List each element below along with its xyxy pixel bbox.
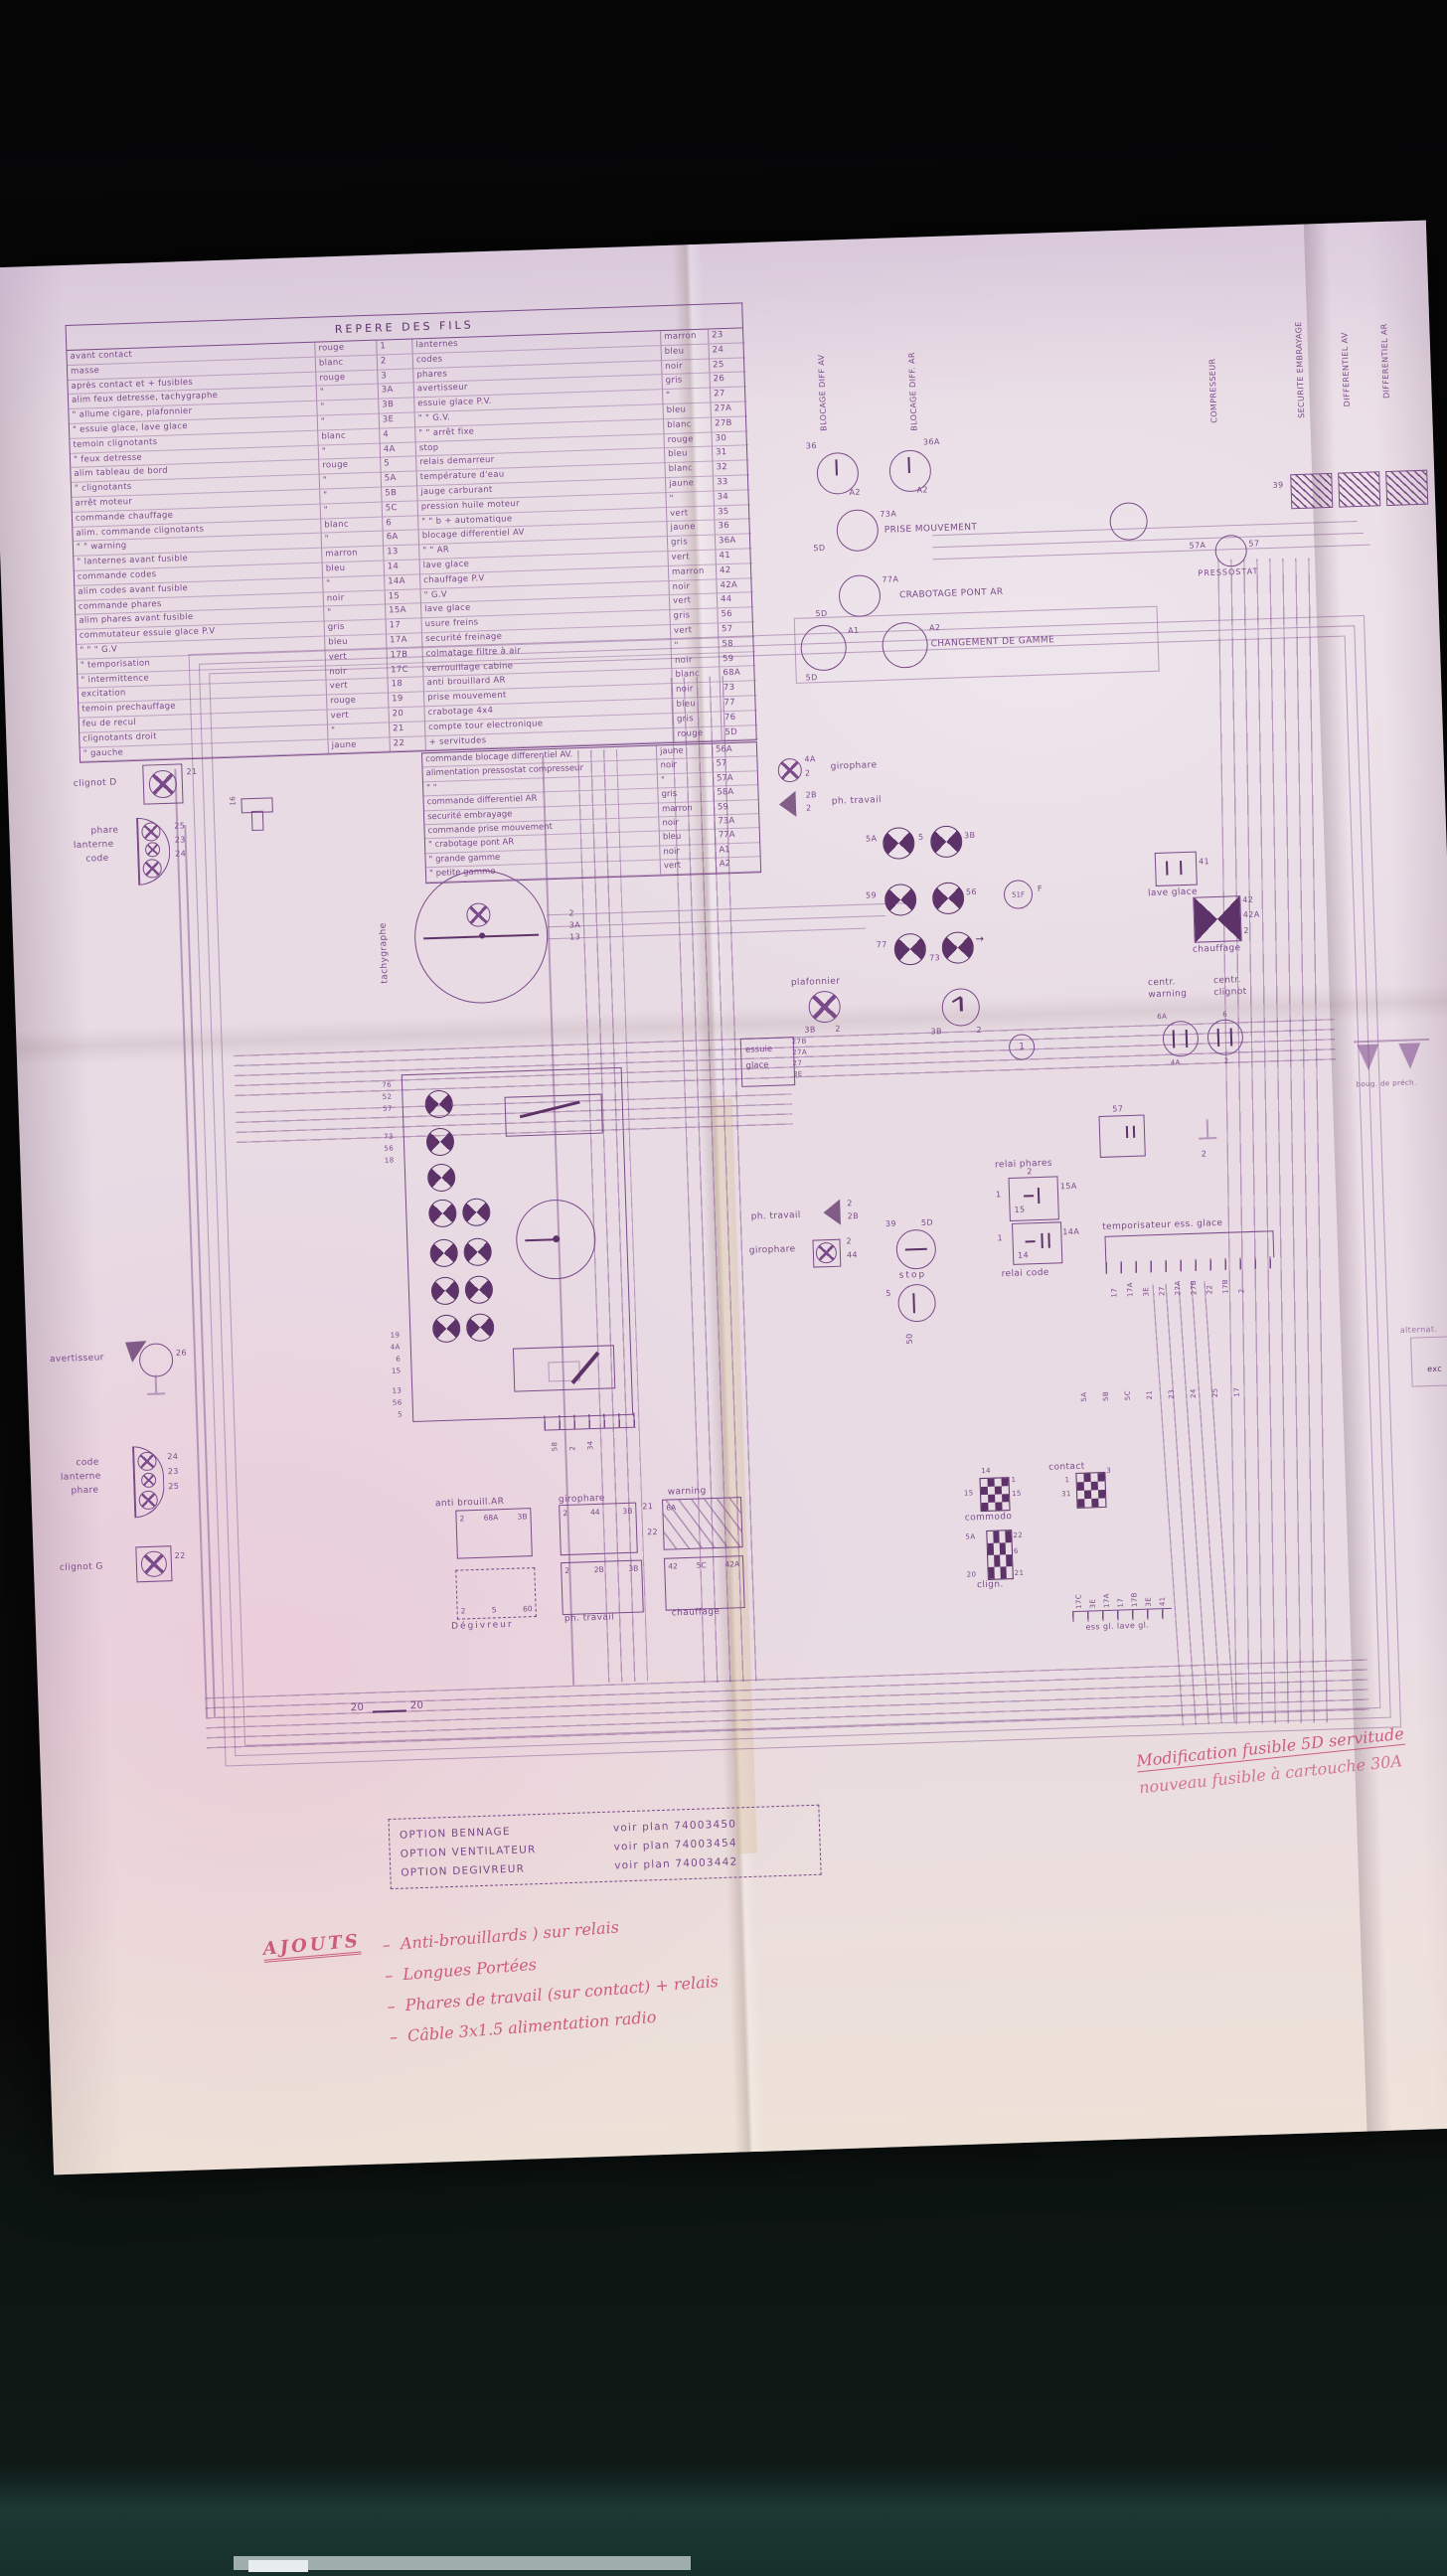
num-left: 17C (388, 663, 423, 679)
color-right: jaune (666, 476, 714, 492)
pin: 44 (590, 1508, 601, 1553)
compresseur-symbol (1109, 502, 1148, 541)
pin: 17A (1102, 1586, 1111, 1608)
pin: 58 (551, 1433, 560, 1451)
num-right: 32 (713, 460, 748, 476)
wire-table: REPERE DES FILS avant contact rouge 1 la… (66, 302, 757, 763)
label-lave-glace: lave glace (1148, 887, 1198, 899)
label-clign: clign. (977, 1579, 1004, 1590)
pin: 14A (1062, 1227, 1079, 1237)
color-right: vert (671, 623, 719, 639)
label-commodo: commodo (965, 1512, 1013, 1524)
pin: 39 (885, 1219, 896, 1229)
num-right: 73 (721, 681, 756, 697)
num-right: 34 (714, 490, 749, 506)
pin: 31 (1061, 1490, 1071, 1498)
pin: 2 (1202, 1149, 1207, 1158)
label-degivreur: Dégivreur (451, 1620, 514, 1632)
pin: 59 (866, 890, 877, 900)
pin: 25 (1210, 1375, 1219, 1397)
num-right: 25 (710, 358, 745, 374)
pin: A2 (849, 488, 861, 498)
label-glace: glace (745, 1056, 794, 1074)
cluster-pins-g1: 765257 (370, 1079, 393, 1116)
blueprint-sheet: REPERE DES FILS avant contact rouge 1 la… (0, 221, 1447, 2175)
num-left: 14A (385, 574, 420, 590)
pin: F (1038, 885, 1043, 893)
num-left: 5 (381, 457, 416, 473)
num: 57A (714, 771, 757, 787)
pin: 5C (697, 1560, 709, 1608)
pin: 21 (186, 767, 197, 777)
pin: 5A (965, 1532, 975, 1540)
label-plafonnier: plafonnier (791, 977, 841, 989)
arrow-icon: → (975, 934, 984, 946)
label-securite-embrayage: SECURITE EMBRAYAGE (1294, 319, 1306, 418)
pin: 56 (380, 1396, 402, 1409)
pin: 13 (380, 1384, 402, 1397)
table-surface (0, 2465, 1447, 2576)
pin: 5D (921, 1218, 933, 1228)
pin: 2 (1224, 1057, 1229, 1065)
num-right: 58 (719, 637, 754, 653)
option-name: OPTION DEGIVREUR (401, 1859, 614, 1878)
pin: 56 (966, 887, 977, 897)
pin: 22 (174, 1551, 185, 1561)
num: 59 (715, 800, 758, 816)
relai-phares-box (1008, 1176, 1058, 1221)
cluster-pins-g2: 735618 (372, 1131, 395, 1168)
num-left: 5B (382, 486, 417, 502)
pin: 60 (523, 1604, 533, 1613)
ph-travail-symbol-lower (823, 1200, 841, 1226)
pin: 5 (381, 1408, 402, 1421)
num-left: 20 (389, 707, 424, 723)
label-essuie: essuie (745, 1041, 794, 1058)
pin: 24 (175, 849, 186, 859)
pin: 27A (1174, 1273, 1183, 1295)
pin: 25 (168, 1482, 179, 1492)
color-right: " (663, 389, 711, 404)
switch-warning: 6A (662, 1497, 743, 1550)
pin: 42A (724, 1559, 740, 1607)
instrument-cluster (402, 1067, 633, 1422)
color-right: bleu (665, 447, 713, 463)
pin: 73 (929, 953, 940, 963)
num-right: 41 (716, 549, 751, 564)
note-ajouts-heading: AJOUTS (262, 1931, 362, 1963)
pin: 52 (370, 1091, 392, 1104)
pin: 27 (1158, 1274, 1167, 1296)
num-left: 3E (380, 412, 415, 428)
pin: 57 (1112, 1104, 1123, 1114)
num-left: 14 (385, 560, 420, 575)
num: 58A (714, 785, 757, 801)
pin: 18 (372, 1155, 394, 1168)
pin: 17C (1074, 1587, 1083, 1609)
pin: 2 (563, 1509, 568, 1554)
pin: 73 (372, 1131, 394, 1144)
pin: 2 (459, 1514, 465, 1557)
crabotage-connector (838, 574, 881, 617)
label-code: code (85, 854, 109, 865)
horn-symbol (139, 1343, 174, 1377)
pin: 68A (483, 1513, 499, 1556)
pin: 2 (806, 803, 812, 812)
headlamp-cluster-2 (132, 1445, 165, 1518)
pin: A2 (929, 623, 941, 633)
num: A1 (716, 843, 759, 859)
lave-glace-symbol (1155, 852, 1198, 886)
pin: 36 (806, 441, 817, 451)
num-right: 56 (718, 607, 753, 623)
num-right: 27A (711, 402, 746, 417)
options-box: OPTION BENNAGE voir plan 74003450 OPTION… (389, 1805, 822, 1889)
pin: 2 (1243, 926, 1249, 935)
switch-ph-travail: 22B3B (561, 1559, 644, 1615)
pin: 3E (793, 1070, 803, 1078)
label-alternateur: alternat. (1400, 1325, 1438, 1335)
num-right: 57 (719, 622, 754, 638)
color-right: vert (667, 506, 715, 522)
note-ajouts-items: – Anti-brouillards ) sur relais– Longues… (382, 1904, 723, 2052)
pin: 21 (1015, 1569, 1025, 1577)
num: 56A (713, 742, 756, 758)
num-left: 6A (384, 531, 419, 547)
pin: 3A (569, 920, 581, 930)
switch-degivreur: 2560 (455, 1567, 537, 1620)
pin: 2 (1237, 1271, 1246, 1293)
pin: 41 (1158, 1584, 1167, 1606)
num-right: 26 (710, 373, 745, 389)
color-right: vert (670, 594, 718, 610)
pin: 42A (1243, 909, 1260, 919)
pin: 76 (370, 1079, 392, 1092)
num-right: 68A (720, 667, 755, 683)
headlamp-cluster (136, 817, 171, 885)
pin: 25 (174, 821, 185, 831)
pin: 5A (866, 834, 878, 844)
pin: 2 (835, 1025, 841, 1034)
label-clignot-d: clignot D (74, 778, 117, 790)
label-phare2: phare (71, 1486, 98, 1497)
wire-table-extra: commande blocage differentiel AV. jaune … (421, 741, 761, 884)
horn-ground (147, 1392, 165, 1395)
clignot-g-lamp-box (135, 1545, 172, 1582)
pin: 5 (918, 833, 924, 842)
pin: 34 (586, 1432, 595, 1450)
pin: 23 (175, 835, 186, 845)
num-right: 35 (715, 505, 750, 521)
num-right: 77 (721, 696, 756, 712)
pin: 19 (378, 1329, 400, 1342)
color: vert (661, 859, 717, 875)
label-ph-travail-switch: ph. travail (564, 1612, 614, 1624)
pin: 77A (882, 574, 898, 584)
label-ph-travail-upper: ph. travail (832, 795, 882, 807)
num-right: 5D (722, 725, 757, 741)
pin: 22 (1206, 1272, 1214, 1294)
color-right: marron (669, 564, 717, 580)
pin: 27B (1190, 1273, 1199, 1295)
pin: 41 (1199, 857, 1209, 867)
pin: 2 (460, 1606, 465, 1615)
color-right: gris (668, 536, 716, 552)
switch-girophare: 2443B (559, 1503, 638, 1556)
num-right: 23 (709, 328, 744, 344)
girophare-box-lower (812, 1239, 841, 1268)
label-girophare-upper: girophare (831, 760, 878, 772)
pin: 2B (594, 1565, 606, 1613)
wire-21: 21 (642, 1502, 653, 1512)
num-right: 42 (717, 563, 752, 579)
switch-chauffage: 425C42A (664, 1555, 745, 1611)
pin: 57 (1248, 539, 1259, 549)
pin: 73A (880, 509, 896, 519)
pin: 2 (568, 1433, 577, 1451)
pin: A1 (848, 626, 860, 636)
pin: 3 (1106, 1467, 1111, 1475)
pin: 23 (1167, 1377, 1176, 1399)
wire-table-body: avant contact rouge 1 lanternes marron 2… (66, 327, 756, 763)
pin: 2 (847, 1199, 853, 1207)
chauffage-fan-symbol (1193, 895, 1241, 943)
color-right: noir (669, 579, 717, 595)
commodo-connector (979, 1477, 1010, 1512)
pin: 5D (813, 544, 825, 554)
num-left: 3B (379, 399, 414, 414)
pin: 3E (1088, 1586, 1097, 1608)
label-differentiel-ar: DIFFERENTIEL AR (1379, 306, 1391, 399)
bougie-triangle (1357, 1045, 1379, 1071)
temporisateur-pins: 1717A3E2727A27B2217B2 (1110, 1271, 1246, 1298)
pin: 5B (1101, 1379, 1110, 1401)
pin: 42 (668, 1561, 679, 1609)
num-left: 1 (377, 339, 412, 355)
pin: 5A (1079, 1380, 1088, 1402)
pin: 3B (964, 831, 976, 841)
num-left: 15A (386, 604, 421, 620)
pin: 17 (1110, 1275, 1119, 1297)
color-right: blanc (672, 668, 720, 684)
label-ph-travail-lower: ph. travail (750, 1210, 800, 1222)
pin: 1 (1011, 1476, 1016, 1484)
ph-travail-symbol-upper (778, 791, 796, 818)
color-right: noir (673, 682, 721, 698)
label-code2: code (76, 1458, 99, 1469)
pin: 27 (792, 1059, 802, 1067)
pin: 5 (885, 1289, 891, 1298)
label-compresseur: COMPRESSEUR (1207, 344, 1219, 423)
num: 77A (716, 829, 759, 845)
pin: 22 (1013, 1531, 1023, 1539)
pin: 36A (923, 437, 940, 447)
num: A2 (717, 857, 760, 873)
essuie-glace-box: essuie glace (740, 1037, 796, 1087)
pin: 15A (1060, 1182, 1077, 1192)
pin: 23 (168, 1467, 179, 1477)
num-left: 4A (381, 442, 416, 458)
color-right: noir (672, 653, 720, 669)
horn-ground-stem (155, 1375, 157, 1393)
label-blocage-diff-ar: BLOCAGE DIFF. AR (906, 337, 918, 431)
clignot-d-lamp-box (142, 763, 183, 804)
num-right: 76 (722, 711, 757, 726)
pin: 4A (804, 754, 816, 764)
label-phare: phare (90, 826, 118, 837)
option-plan: voir plan 74003442 (614, 1853, 810, 1872)
fuel-gauge (505, 1094, 603, 1137)
num-right: 36 (715, 520, 750, 536)
pin: 1 (996, 1190, 1002, 1199)
resistor-box (1385, 470, 1428, 506)
num-left: 22 (390, 736, 425, 752)
num-left: 2 (378, 354, 413, 370)
num-left: 5C (383, 501, 418, 517)
num: 73A (715, 814, 758, 830)
pin: 3E (1142, 1274, 1151, 1296)
pin: 20 (967, 1570, 977, 1578)
relay-57 (1098, 1114, 1145, 1158)
pin: 2 (805, 768, 811, 777)
num-left: 5A (382, 472, 417, 488)
pin: 15 (379, 1365, 401, 1377)
pin: 17B (1130, 1585, 1139, 1607)
alternateur-box (1410, 1336, 1447, 1387)
pin: 17B (1221, 1272, 1230, 1294)
pin-fuse: 16 (229, 786, 238, 806)
pin: 4A (1171, 1058, 1181, 1066)
num-right: 31 (713, 446, 748, 462)
pin: 57 (371, 1103, 393, 1116)
num-right: 27 (711, 388, 746, 403)
color-right: marron (661, 330, 709, 346)
num-left: 6 (383, 516, 418, 532)
num-left: 15 (386, 589, 421, 605)
pin: 5C (1123, 1378, 1132, 1400)
pin: 21 (1145, 1377, 1154, 1399)
pin: 17 (1233, 1374, 1242, 1396)
drawing-area: REPERE DES FILS avant contact rouge 1 la… (9, 226, 1447, 2170)
color-right: bleu (664, 403, 712, 419)
color-right: bleu (662, 344, 710, 360)
color-right: gris (674, 712, 722, 727)
contact-connector (1075, 1472, 1106, 1509)
pin: 17A (1126, 1275, 1135, 1297)
switch-anti-brouillard: 268A3B (455, 1508, 533, 1558)
label-20: 20 (351, 1702, 365, 1714)
pin: 14 (981, 1467, 991, 1475)
num-right: 30 (712, 431, 747, 447)
pin: 42 (1242, 895, 1253, 905)
photo-edge-highlight (248, 2560, 308, 2572)
color-right: noir (662, 359, 710, 375)
pin: 2 (1027, 1167, 1033, 1176)
clignotant-connector (986, 1529, 1014, 1580)
pin: 5 (492, 1605, 497, 1614)
label-relai-phares: relai phares (995, 1159, 1052, 1171)
num-right: 42A (717, 578, 752, 594)
pin: 6 (1222, 1011, 1227, 1019)
label-lanterne: lanterne (74, 840, 114, 852)
color-right: rouge (674, 726, 722, 742)
pin: 3B (804, 1025, 816, 1035)
label-relai-code: relai code (1002, 1268, 1049, 1280)
pin: 15 (1012, 1490, 1022, 1498)
pin: 6A (666, 1503, 677, 1548)
wire-22: 22 (647, 1528, 658, 1537)
num-left: 17B (388, 648, 423, 664)
label-centr-warning: centr. warning (1148, 976, 1205, 1001)
num-left: 4 (380, 427, 415, 443)
pin: 1 (1064, 1476, 1069, 1484)
num-left: 21 (390, 722, 425, 737)
cluster-pins-bottom: 58234 (551, 1432, 595, 1451)
prise-mouvement-connector (836, 509, 879, 552)
pin: 17 (1116, 1585, 1125, 1607)
pin: 6 (379, 1353, 401, 1366)
pin: 6A (1157, 1013, 1167, 1021)
label-blocage-diff-av: BLOCAGE DIFF AV (816, 340, 828, 431)
label-differentiel-av: DIFFERENTIEL AV (1340, 312, 1352, 406)
pin: 15 (1014, 1205, 1025, 1214)
color-right: vert (668, 550, 716, 565)
essgl-pins: 17C3E17A1717B3E41 (1074, 1584, 1167, 1609)
bougie-triangle (1398, 1043, 1421, 1069)
pin: 39 (1272, 480, 1283, 490)
label-centr-clignot: centr. clignot (1213, 974, 1270, 999)
pin: 2 (976, 1026, 982, 1035)
cluster-pins-g3: 194A615 (378, 1329, 402, 1377)
label-avertisseur: avertisseur (50, 1353, 104, 1365)
pin: 77 (876, 940, 886, 950)
photo-of-wiring-diagram: REPERE DES FILS avant contact rouge 1 la… (0, 0, 1447, 2576)
pin: 1 (997, 1233, 1003, 1242)
color-right: bleu (673, 697, 721, 713)
color-right: gris (670, 609, 718, 625)
pin: 14 (1018, 1250, 1029, 1260)
num-left: 19 (389, 692, 424, 708)
pin: 2B (805, 790, 817, 800)
pin: 3B (628, 1564, 640, 1612)
pin: 6 (1014, 1547, 1019, 1555)
color-left: jaune (328, 737, 390, 754)
pin: 26 (176, 1349, 187, 1359)
color-right: gris (663, 374, 711, 390)
num-left: 13 (384, 545, 419, 561)
label-chauffage: chauffage (1193, 943, 1241, 955)
wire-bundle-right (1217, 558, 1331, 1723)
label-clignot-g: clignot G (60, 1561, 103, 1573)
pin: 5D (806, 673, 818, 683)
label-exc: exc (1427, 1365, 1442, 1374)
label-warning-switch: warning (668, 1486, 707, 1498)
color-right: blanc (664, 417, 712, 433)
num-right: 36A (716, 534, 751, 550)
num: 57 (713, 757, 756, 773)
label-chauffage-switch: chauffage (672, 1607, 721, 1619)
num-left: 18 (388, 678, 423, 694)
resistor-box (1290, 473, 1333, 509)
label-20b: 20 (410, 1700, 424, 1712)
pin: 56 (372, 1143, 394, 1156)
num-left: 17 (387, 618, 422, 634)
label-lanterne2: lanterne (61, 1471, 101, 1483)
pin: 4A (379, 1341, 401, 1354)
color-right: " (671, 638, 719, 654)
color-right: " (666, 491, 714, 507)
pin: 2 (568, 908, 574, 917)
